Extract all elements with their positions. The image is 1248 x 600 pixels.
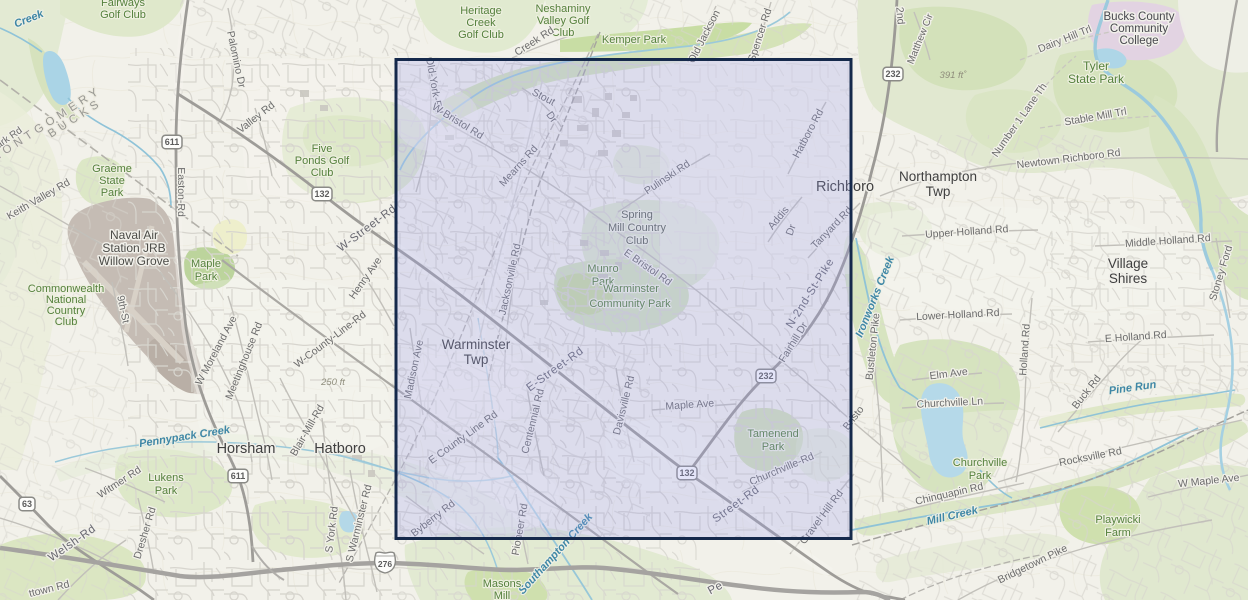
svg-text:Lukens: Lukens [148, 472, 184, 484]
svg-text:132: 132 [314, 189, 329, 199]
svg-text:State Park: State Park [1068, 72, 1125, 86]
svg-text:Community: Community [1110, 23, 1168, 35]
svg-text:Heritage: Heritage [460, 5, 502, 17]
svg-text:Willow Grove: Willow Grove [99, 254, 170, 268]
svg-text:Five: Five [312, 143, 333, 155]
svg-text:Park: Park [155, 485, 178, 497]
svg-text:Park: Park [195, 271, 218, 283]
svg-text:Maple: Maple [191, 258, 221, 270]
svg-text:Farm: Farm [1105, 527, 1131, 539]
svg-text:Creek: Creek [466, 17, 496, 29]
svg-text:Valley Golf: Valley Golf [537, 15, 590, 27]
svg-text:Golf Club: Golf Club [458, 29, 504, 41]
svg-text:Horsham: Horsham [217, 441, 276, 457]
svg-text:Park: Park [101, 187, 124, 199]
svg-text:Tyler: Tyler [1083, 59, 1109, 73]
svg-text:Neshaminy: Neshaminy [535, 3, 591, 15]
svg-text:276: 276 [378, 559, 392, 569]
svg-text:Northampton: Northampton [899, 169, 977, 184]
svg-text:Masons: Masons [483, 578, 522, 590]
svg-text:391 ft˚: 391 ft˚ [940, 70, 968, 81]
svg-text:Kemper Park: Kemper Park [602, 34, 667, 46]
svg-text:Twp: Twp [926, 184, 951, 199]
svg-text:Golf Club: Golf Club [100, 9, 146, 21]
svg-text:Shires: Shires [1109, 271, 1148, 286]
svg-text:Mill: Mill [494, 590, 511, 600]
svg-text:Station JRB: Station JRB [102, 241, 165, 255]
svg-text:Graeme: Graeme [92, 163, 132, 175]
svg-text:Churchville: Churchville [953, 457, 1007, 469]
svg-text:Club: Club [311, 167, 334, 179]
svg-text:College: College [1120, 35, 1159, 47]
svg-text:63: 63 [22, 499, 32, 509]
svg-text:State: State [99, 175, 125, 187]
svg-text:Village: Village [1108, 256, 1148, 271]
svg-text:Hatboro: Hatboro [314, 441, 366, 457]
svg-text:Fairways: Fairways [101, 0, 146, 9]
svg-text:Bucks County: Bucks County [1104, 11, 1175, 23]
svg-text:250 ft: 250 ft [320, 377, 345, 388]
svg-text:Ponds Golf: Ponds Golf [295, 155, 350, 167]
svg-text:Club: Club [55, 316, 78, 328]
svg-text:611: 611 [165, 137, 180, 147]
svg-text:611: 611 [231, 471, 246, 481]
svg-text:2nd: 2nd [893, 6, 906, 25]
svg-text:Naval Air: Naval Air [110, 228, 158, 242]
svg-text:Easton-Rd: Easton-Rd [175, 167, 187, 217]
svg-text:Playwicki: Playwicki [1095, 514, 1140, 526]
svg-text:232: 232 [885, 69, 900, 79]
